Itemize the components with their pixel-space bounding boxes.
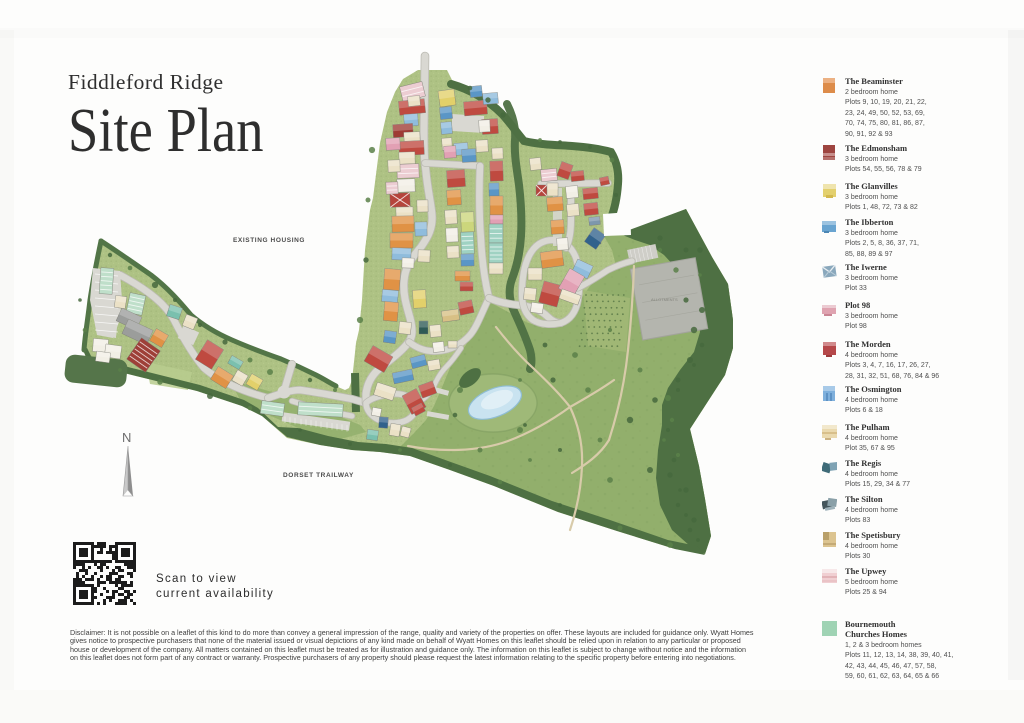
svg-text:N: N — [122, 430, 131, 445]
svg-text:ALLOTMENTS: ALLOTMENTS — [651, 297, 678, 302]
